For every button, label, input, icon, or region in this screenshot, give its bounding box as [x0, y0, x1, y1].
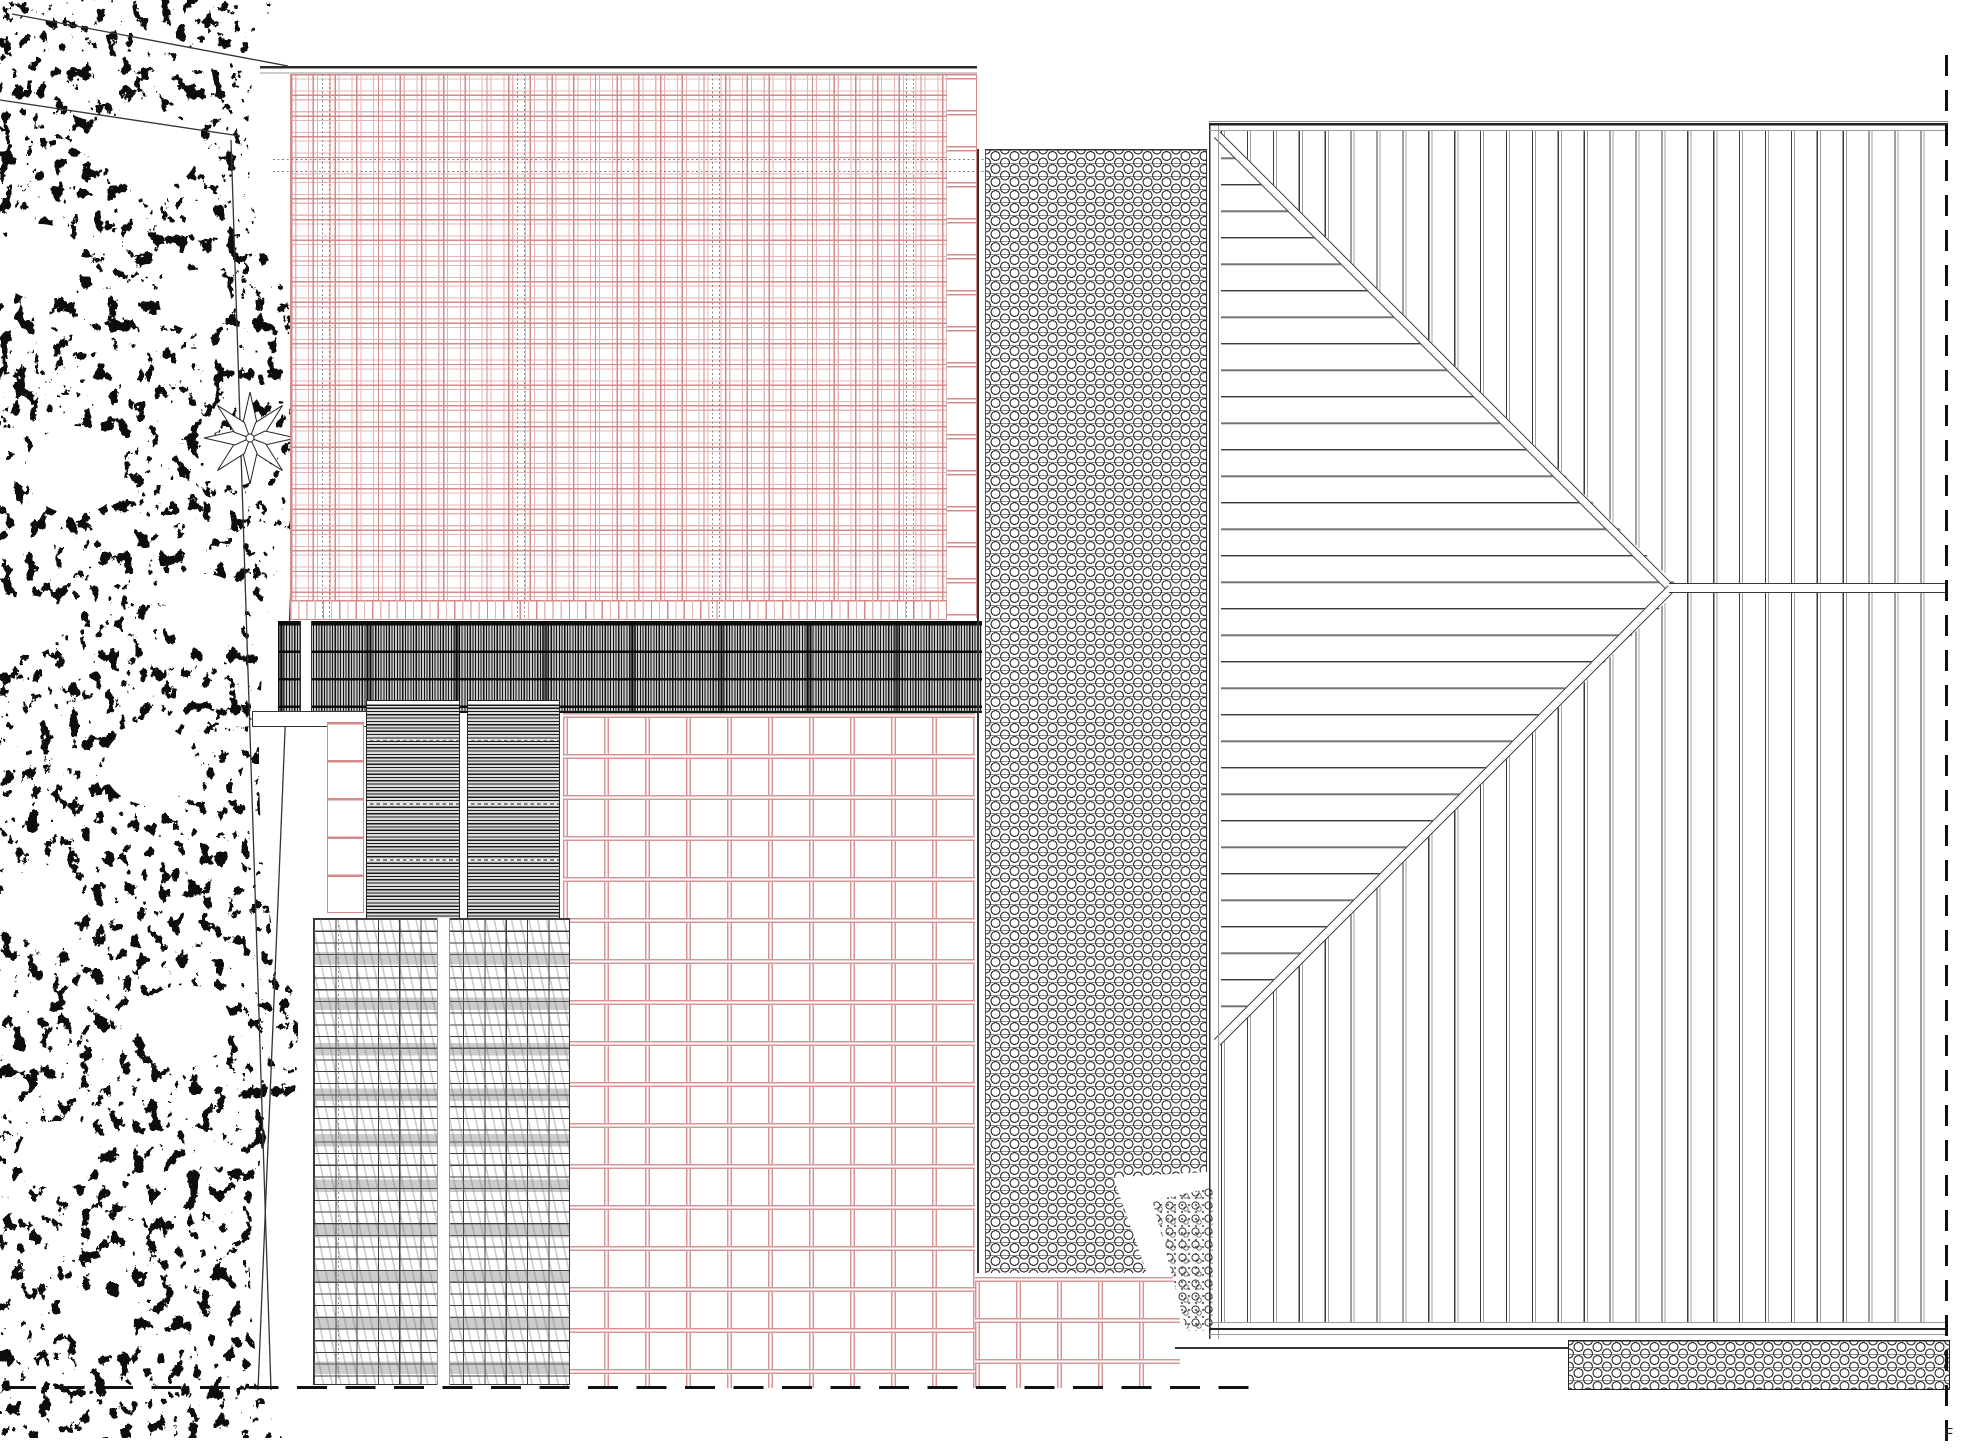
reference-dotted-line: [712, 74, 713, 618]
eave-step-line: [1175, 1347, 1568, 1349]
pink-grid-paving: [563, 712, 975, 1388]
pink-roof-eave-tiles: [290, 600, 947, 620]
planter-steps: [327, 722, 364, 913]
hip-roof-eave: [1209, 1322, 1948, 1339]
eave-tile-course: [1568, 1340, 1950, 1390]
reference-dotted-line: [273, 171, 985, 172]
trellis-centre-seam: [437, 918, 450, 1385]
reference-dotted-line: [906, 74, 907, 618]
boundary-dashed-line-vertical: [1945, 55, 1948, 1454]
pink-roof-edge-course: [947, 74, 977, 618]
reference-dotted-line: [517, 74, 518, 618]
louvred-hatch-right: [467, 700, 560, 919]
reference-dotted-line: [719, 74, 720, 618]
reference-dotted-line: [913, 74, 914, 618]
vegetation-and-boundary: [0, 0, 330, 1454]
pink-grid-paving-extension: [975, 1277, 1180, 1388]
hip-roof-top-fascia: [1209, 121, 1948, 132]
louvre-band-gap: [300, 621, 312, 713]
roman-tile-strip-frame: [977, 149, 979, 1273]
site-roof-plan-drawing: F: [0, 0, 1966, 1454]
ridge-line: [1669, 583, 1948, 593]
hip-roof-left-edge: [1209, 123, 1221, 1339]
reference-dotted-line: [524, 74, 525, 618]
roman-tile-strip: [985, 149, 1207, 1273]
boundary-dashed-line-horizontal: [6, 1386, 1266, 1389]
pink-tile-roof: [290, 74, 947, 601]
corner-label: F: [1944, 1426, 1953, 1441]
reference-dotted-line: [338, 925, 339, 1380]
reference-dotted-line: [329, 74, 330, 618]
reference-dotted-line: [322, 74, 323, 618]
louvred-hatch-left: [366, 700, 460, 919]
plant-star-symbol: [204, 392, 296, 484]
reference-dotted-line: [273, 159, 985, 160]
